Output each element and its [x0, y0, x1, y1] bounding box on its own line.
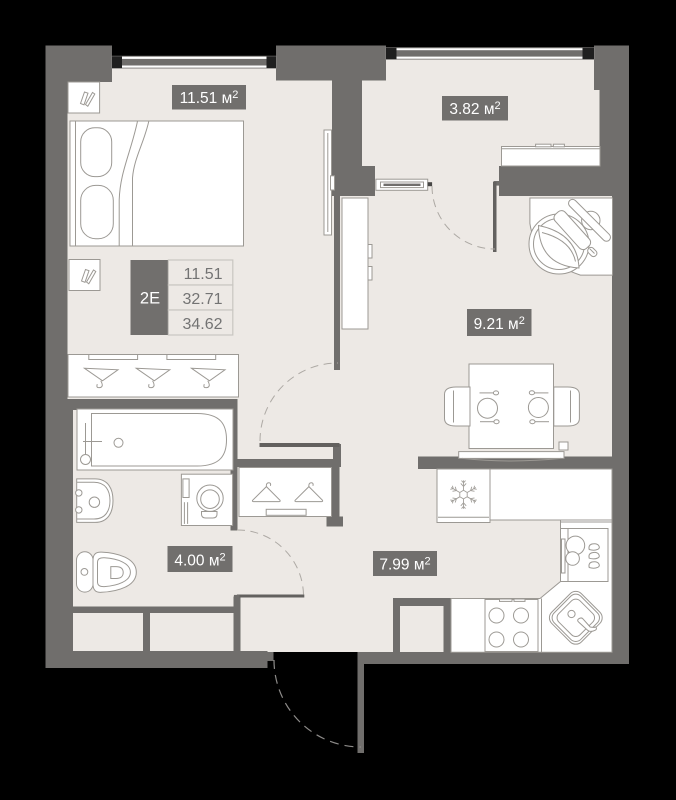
svg-text:34.62: 34.62: [182, 316, 222, 333]
svg-text:2E: 2E: [140, 290, 160, 308]
svg-text:32.71: 32.71: [182, 291, 222, 308]
svg-text:4.00 м2: 4.00 м2: [174, 551, 225, 569]
svg-text:7.99 м2: 7.99 м2: [379, 556, 430, 574]
svg-text:11.51 м2: 11.51 м2: [180, 89, 239, 107]
svg-text:9.21 м2: 9.21 м2: [474, 315, 525, 333]
svg-text:3.82 м2: 3.82 м2: [449, 100, 500, 118]
svg-text:11.51: 11.51: [184, 266, 223, 283]
